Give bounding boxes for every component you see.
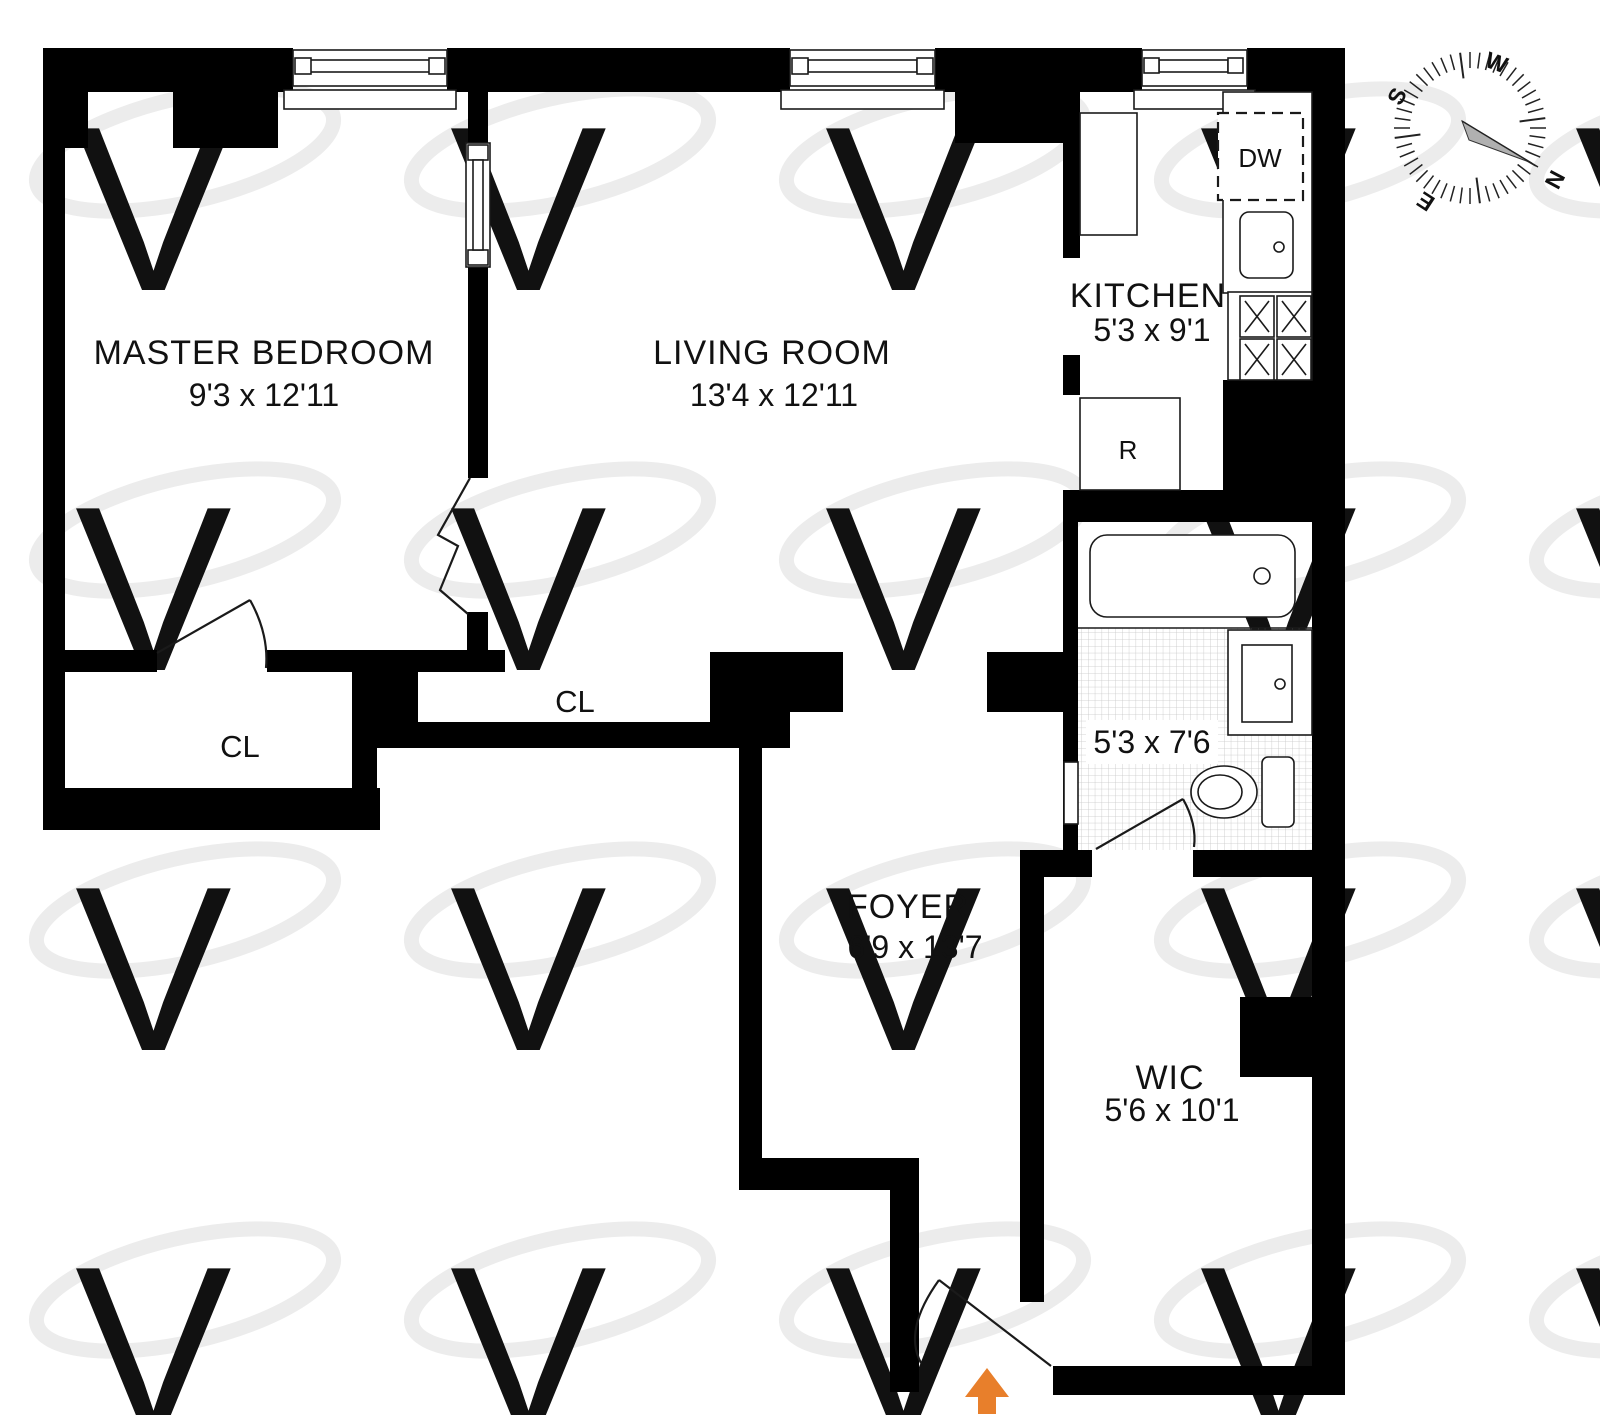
label-bathroom-dims: 5'3 x 7'6: [1093, 724, 1210, 760]
kitchen-sink-icon: [1240, 212, 1293, 278]
wall-segment: [1063, 355, 1080, 395]
floorplan-svg: V: [0, 0, 1600, 1415]
label-wic-dims: 5'6 x 10'1: [1105, 1092, 1240, 1128]
stove-icon: [1228, 292, 1312, 380]
window-master-bedroom: [284, 50, 456, 109]
wall-segment: [43, 48, 65, 830]
label-foyer: FOYER: [847, 888, 969, 926]
wall-segment: [890, 1158, 919, 1392]
floorplan-page: V: [0, 0, 1600, 1415]
wall-segment: [955, 92, 1080, 143]
wall-segment: [173, 92, 278, 148]
wall-segment: [468, 92, 488, 145]
bathroom-sink-icon: [1228, 630, 1312, 735]
label-dishwasher: DW: [1238, 143, 1282, 173]
wall-segment: [1312, 48, 1345, 1395]
label-master-bedroom-dims: 9'3 x 12'11: [189, 377, 339, 413]
wall-segment: [739, 1158, 910, 1190]
bathroom-wall-niche: [1064, 762, 1078, 824]
label-closet-hall: CL: [555, 684, 595, 719]
label-refrigerator: R: [1119, 435, 1138, 465]
wall-segment: [43, 788, 380, 830]
wall-segment: [935, 48, 1142, 92]
wall-segment: [1053, 1366, 1345, 1395]
label-kitchen-dims: 5'3 x 9'1: [1093, 312, 1210, 348]
label-living-room: LIVING ROOM: [653, 334, 891, 372]
wall-segment: [467, 612, 488, 652]
wall-segment: [468, 267, 488, 478]
wall-segment: [1020, 877, 1044, 1302]
wall-segment: [1063, 143, 1080, 258]
wall-segment: [352, 663, 418, 722]
bathroom-fixtures: [1064, 535, 1312, 850]
label-master-bedroom: MASTER BEDROOM: [94, 334, 435, 372]
label-living-room-dims: 13'4 x 12'11: [690, 377, 858, 413]
label-foyer-dims: 6'9 x 13'7: [848, 929, 983, 965]
label-closet-master: CL: [220, 729, 260, 764]
wall-segment: [43, 48, 293, 92]
window-interior-partition: [466, 143, 490, 267]
kitchen-counter-icon: [1080, 113, 1137, 235]
wall-segment: [447, 48, 790, 92]
bathtub-icon: [1090, 535, 1295, 617]
wall-segment: [65, 92, 88, 148]
window-living-room: [781, 50, 944, 109]
wall-segment: [43, 650, 157, 672]
wall-segment: [790, 652, 843, 712]
wall-segment: [1240, 997, 1312, 1077]
wall-segment: [710, 652, 790, 748]
label-kitchen: KITCHEN: [1070, 277, 1226, 315]
wall-segment: [739, 748, 762, 1158]
wall-segment: [1020, 850, 1092, 877]
